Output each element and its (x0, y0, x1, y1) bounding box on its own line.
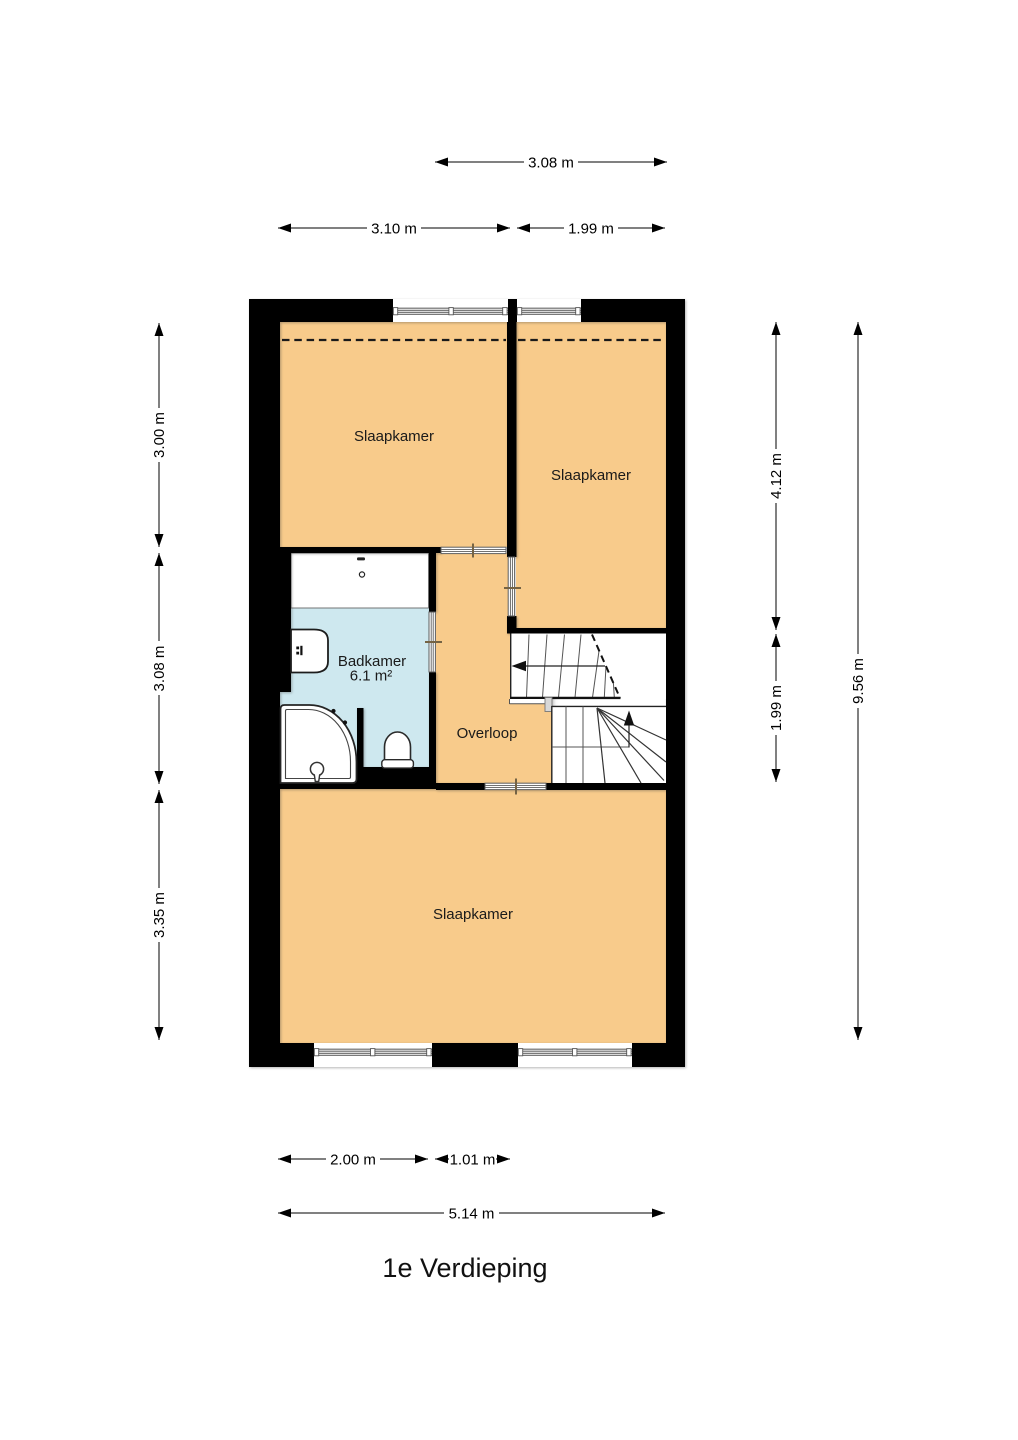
svg-text:1.99 m: 1.99 m (768, 685, 785, 731)
svg-text:5.14 m: 5.14 m (449, 1205, 495, 1222)
svg-text:Slaapkamer: Slaapkamer (354, 428, 434, 445)
svg-text:3.35 m: 3.35 m (151, 892, 168, 938)
svg-text:4.12 m: 4.12 m (768, 453, 785, 499)
svg-text:2.00 m: 2.00 m (330, 1151, 376, 1168)
svg-text:9.56 m: 9.56 m (850, 658, 867, 704)
svg-text:3.08 m: 3.08 m (151, 646, 168, 692)
svg-text:6.1 m²: 6.1 m² (350, 668, 393, 685)
svg-text:1e Verdieping: 1e Verdieping (382, 1253, 547, 1283)
svg-text:Slaapkamer: Slaapkamer (551, 467, 631, 484)
svg-text:1.01 m: 1.01 m (450, 1151, 496, 1168)
svg-text:Slaapkamer: Slaapkamer (433, 906, 513, 923)
svg-text:1.99 m: 1.99 m (568, 220, 614, 237)
svg-text:3.00 m: 3.00 m (151, 412, 168, 458)
svg-text:3.10 m: 3.10 m (371, 220, 417, 237)
svg-text:Overloop: Overloop (457, 725, 518, 742)
svg-text:3.08 m: 3.08 m (528, 154, 574, 171)
